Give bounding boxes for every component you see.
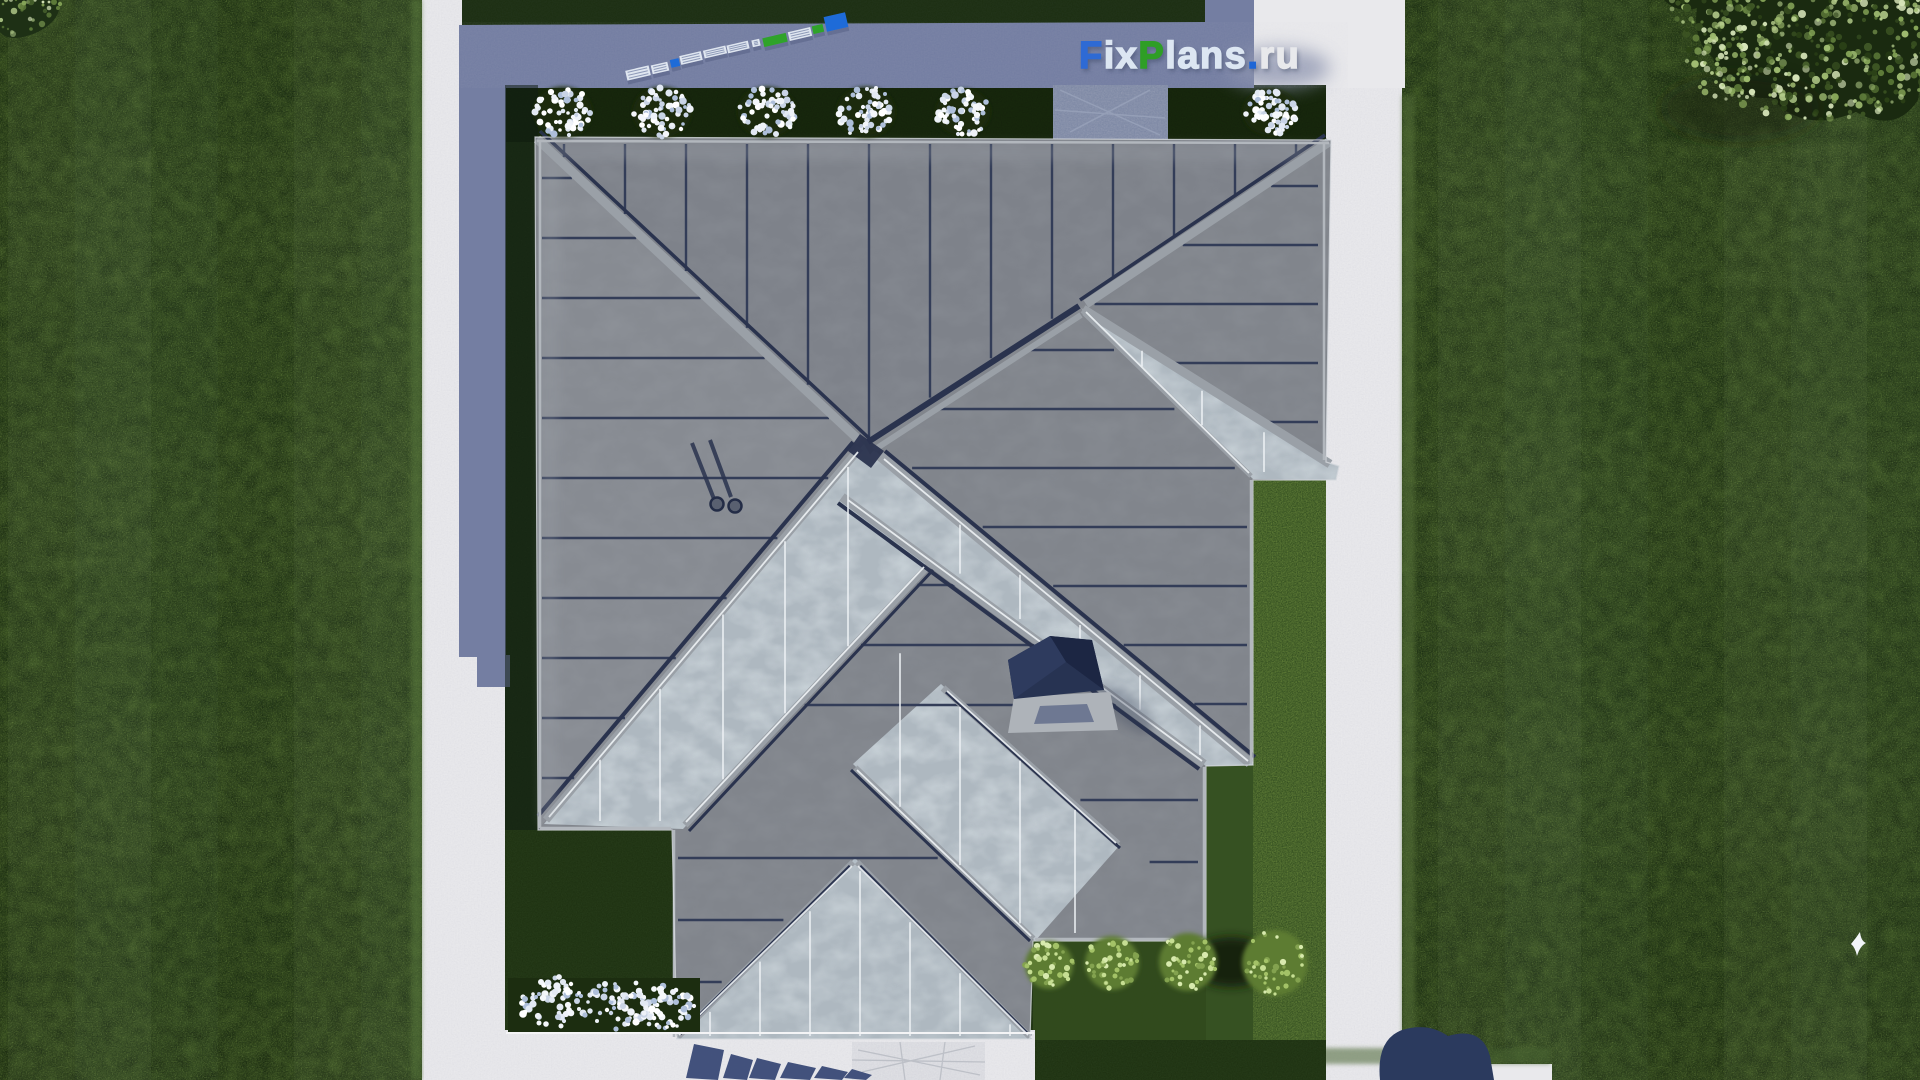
svg-text:FixPlans.ru: FixPlans.ru	[1079, 35, 1300, 77]
